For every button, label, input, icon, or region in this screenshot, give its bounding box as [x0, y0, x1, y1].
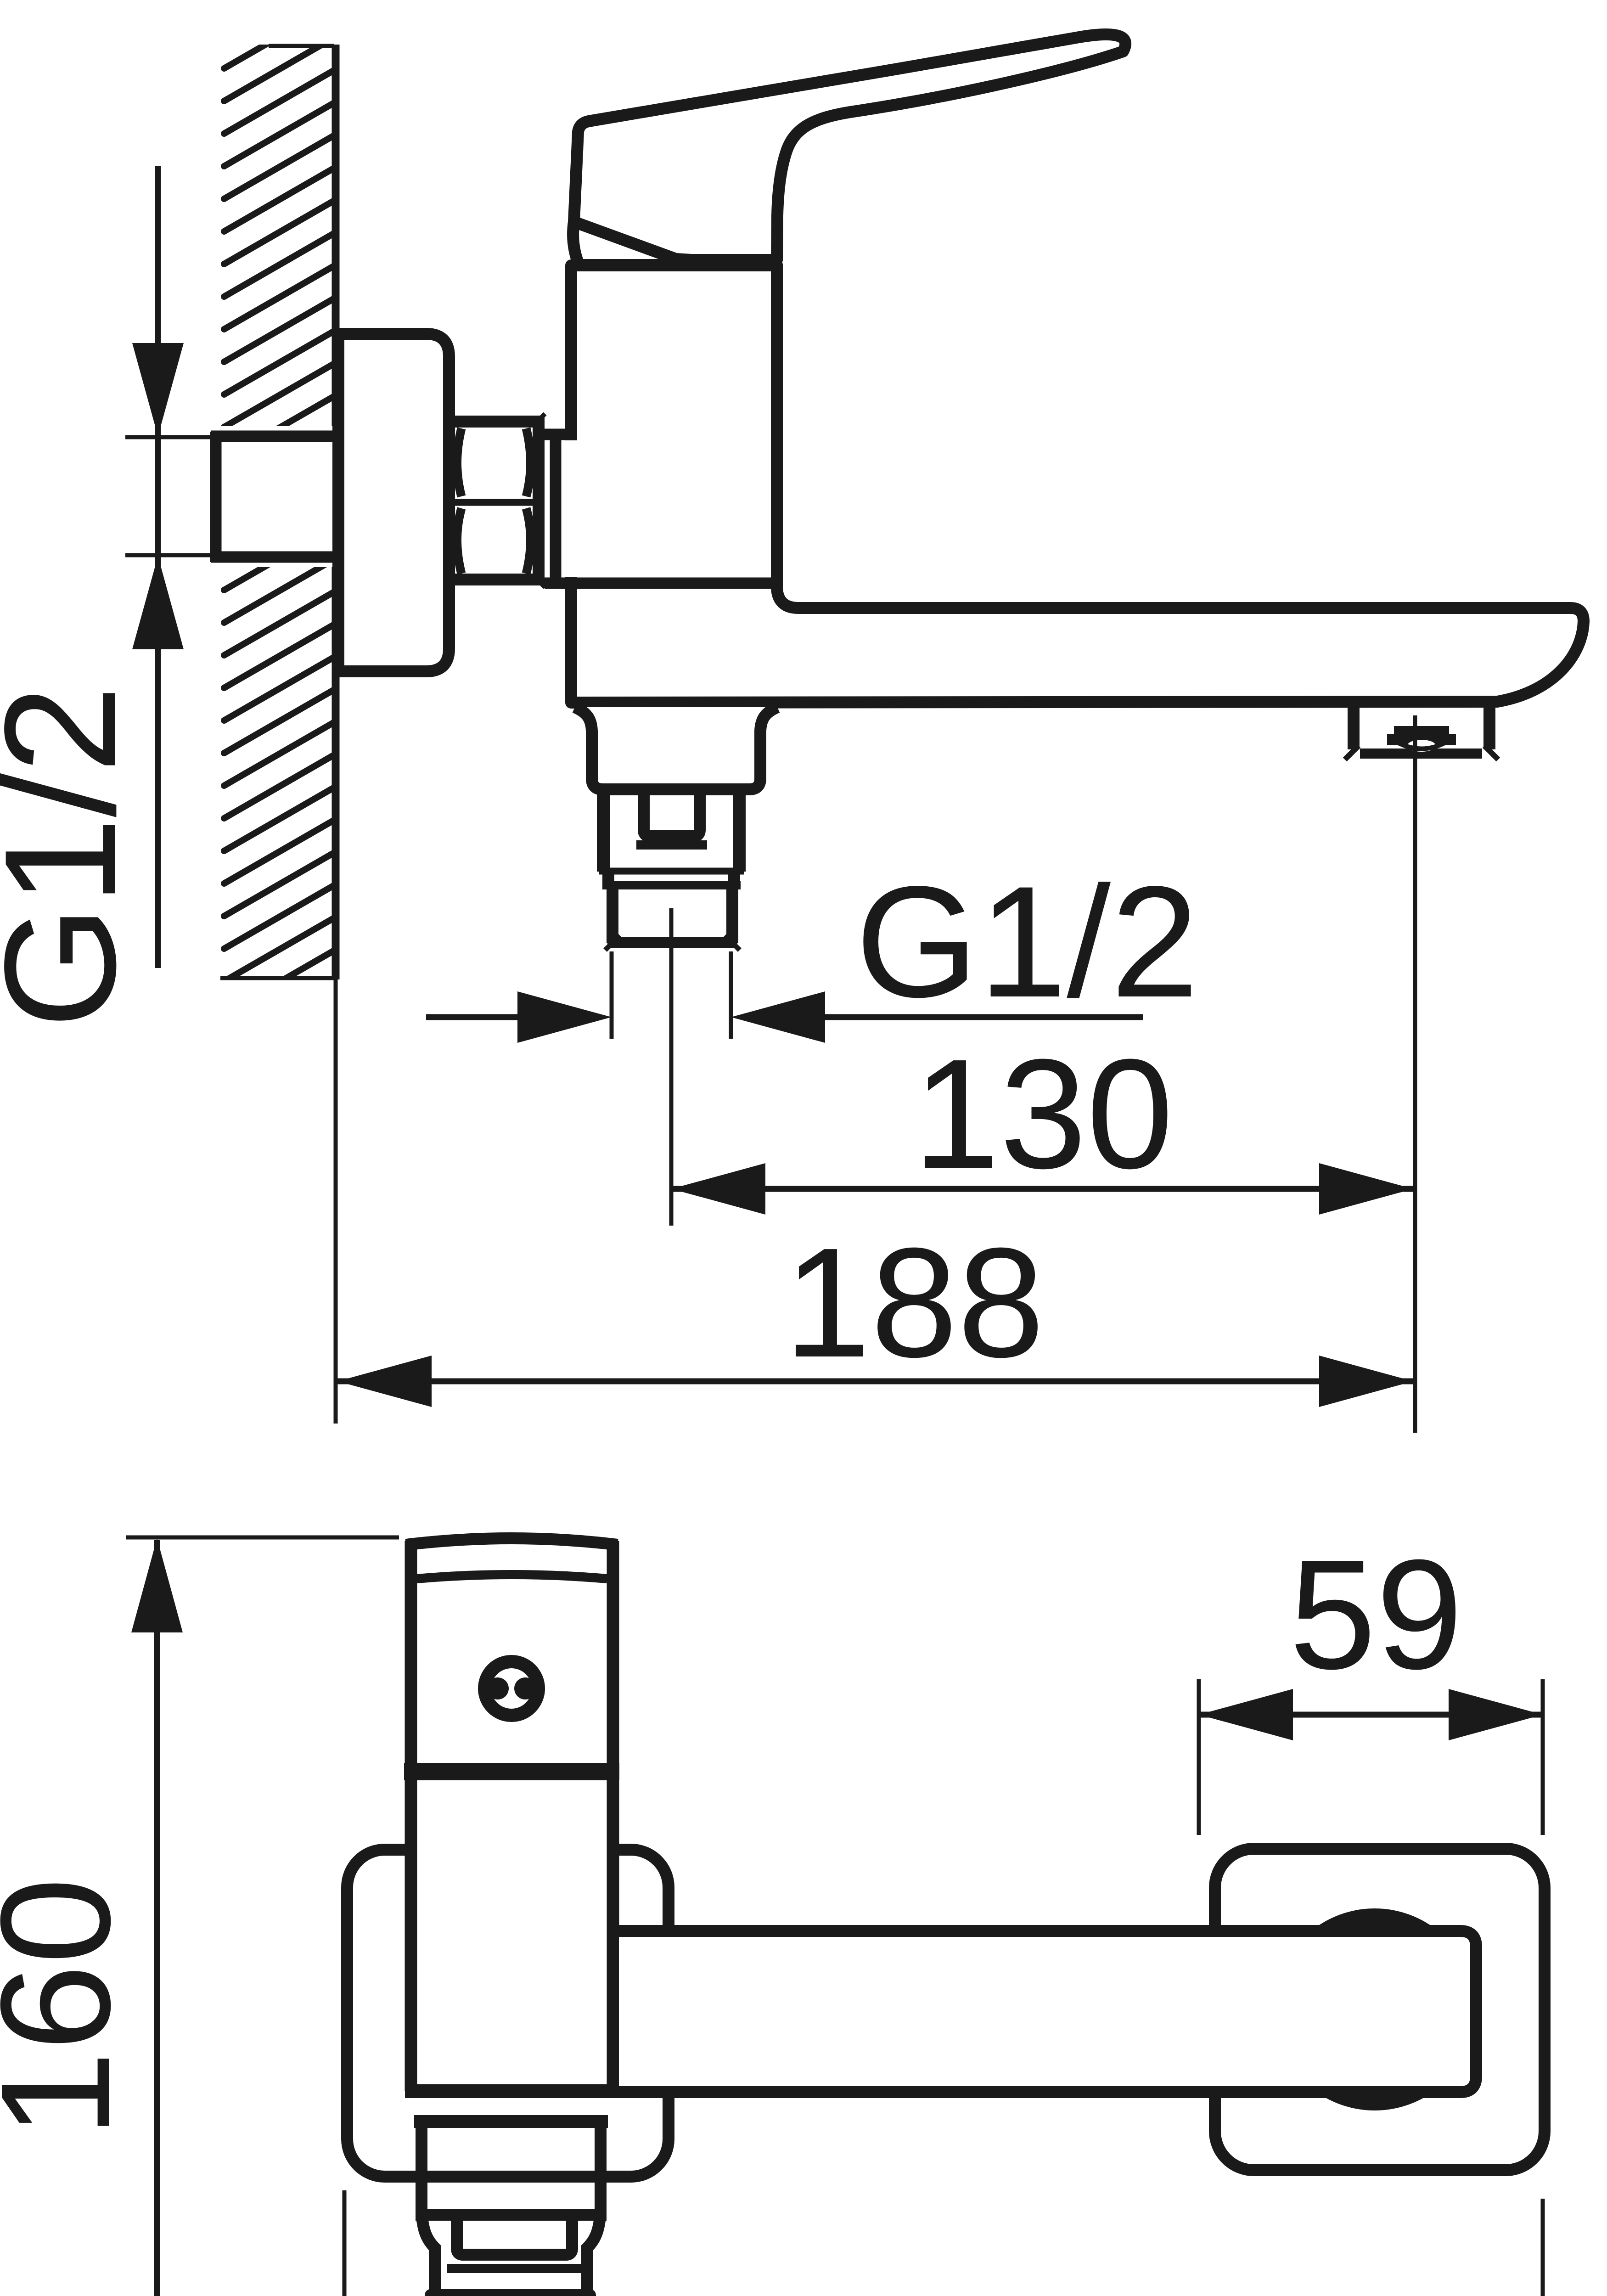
- svg-text:G1/2: G1/2: [855, 854, 1199, 1030]
- svg-text:130: 130: [913, 1027, 1173, 1201]
- svg-text:G1/2: G1/2: [0, 685, 149, 1029]
- svg-text:59: 59: [1289, 1527, 1463, 1702]
- svg-text:160: 160: [0, 1877, 143, 2138]
- svg-text:188: 188: [784, 1216, 1044, 1390]
